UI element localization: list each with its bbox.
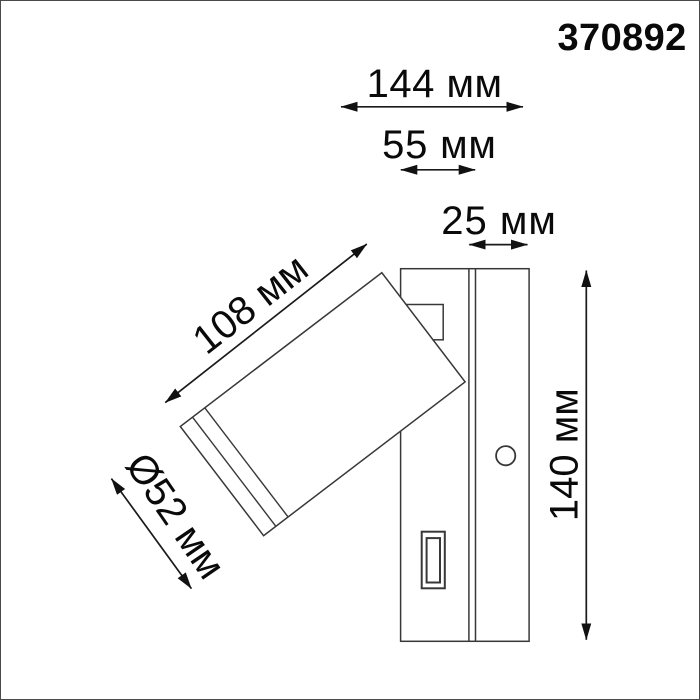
svg-text:55 мм: 55 мм xyxy=(382,123,497,167)
svg-text:370892: 370892 xyxy=(558,17,687,59)
svg-text:140 мм: 140 мм xyxy=(543,388,587,521)
svg-text:25 мм: 25 мм xyxy=(441,199,557,243)
svg-text:144 мм: 144 мм xyxy=(367,62,503,106)
